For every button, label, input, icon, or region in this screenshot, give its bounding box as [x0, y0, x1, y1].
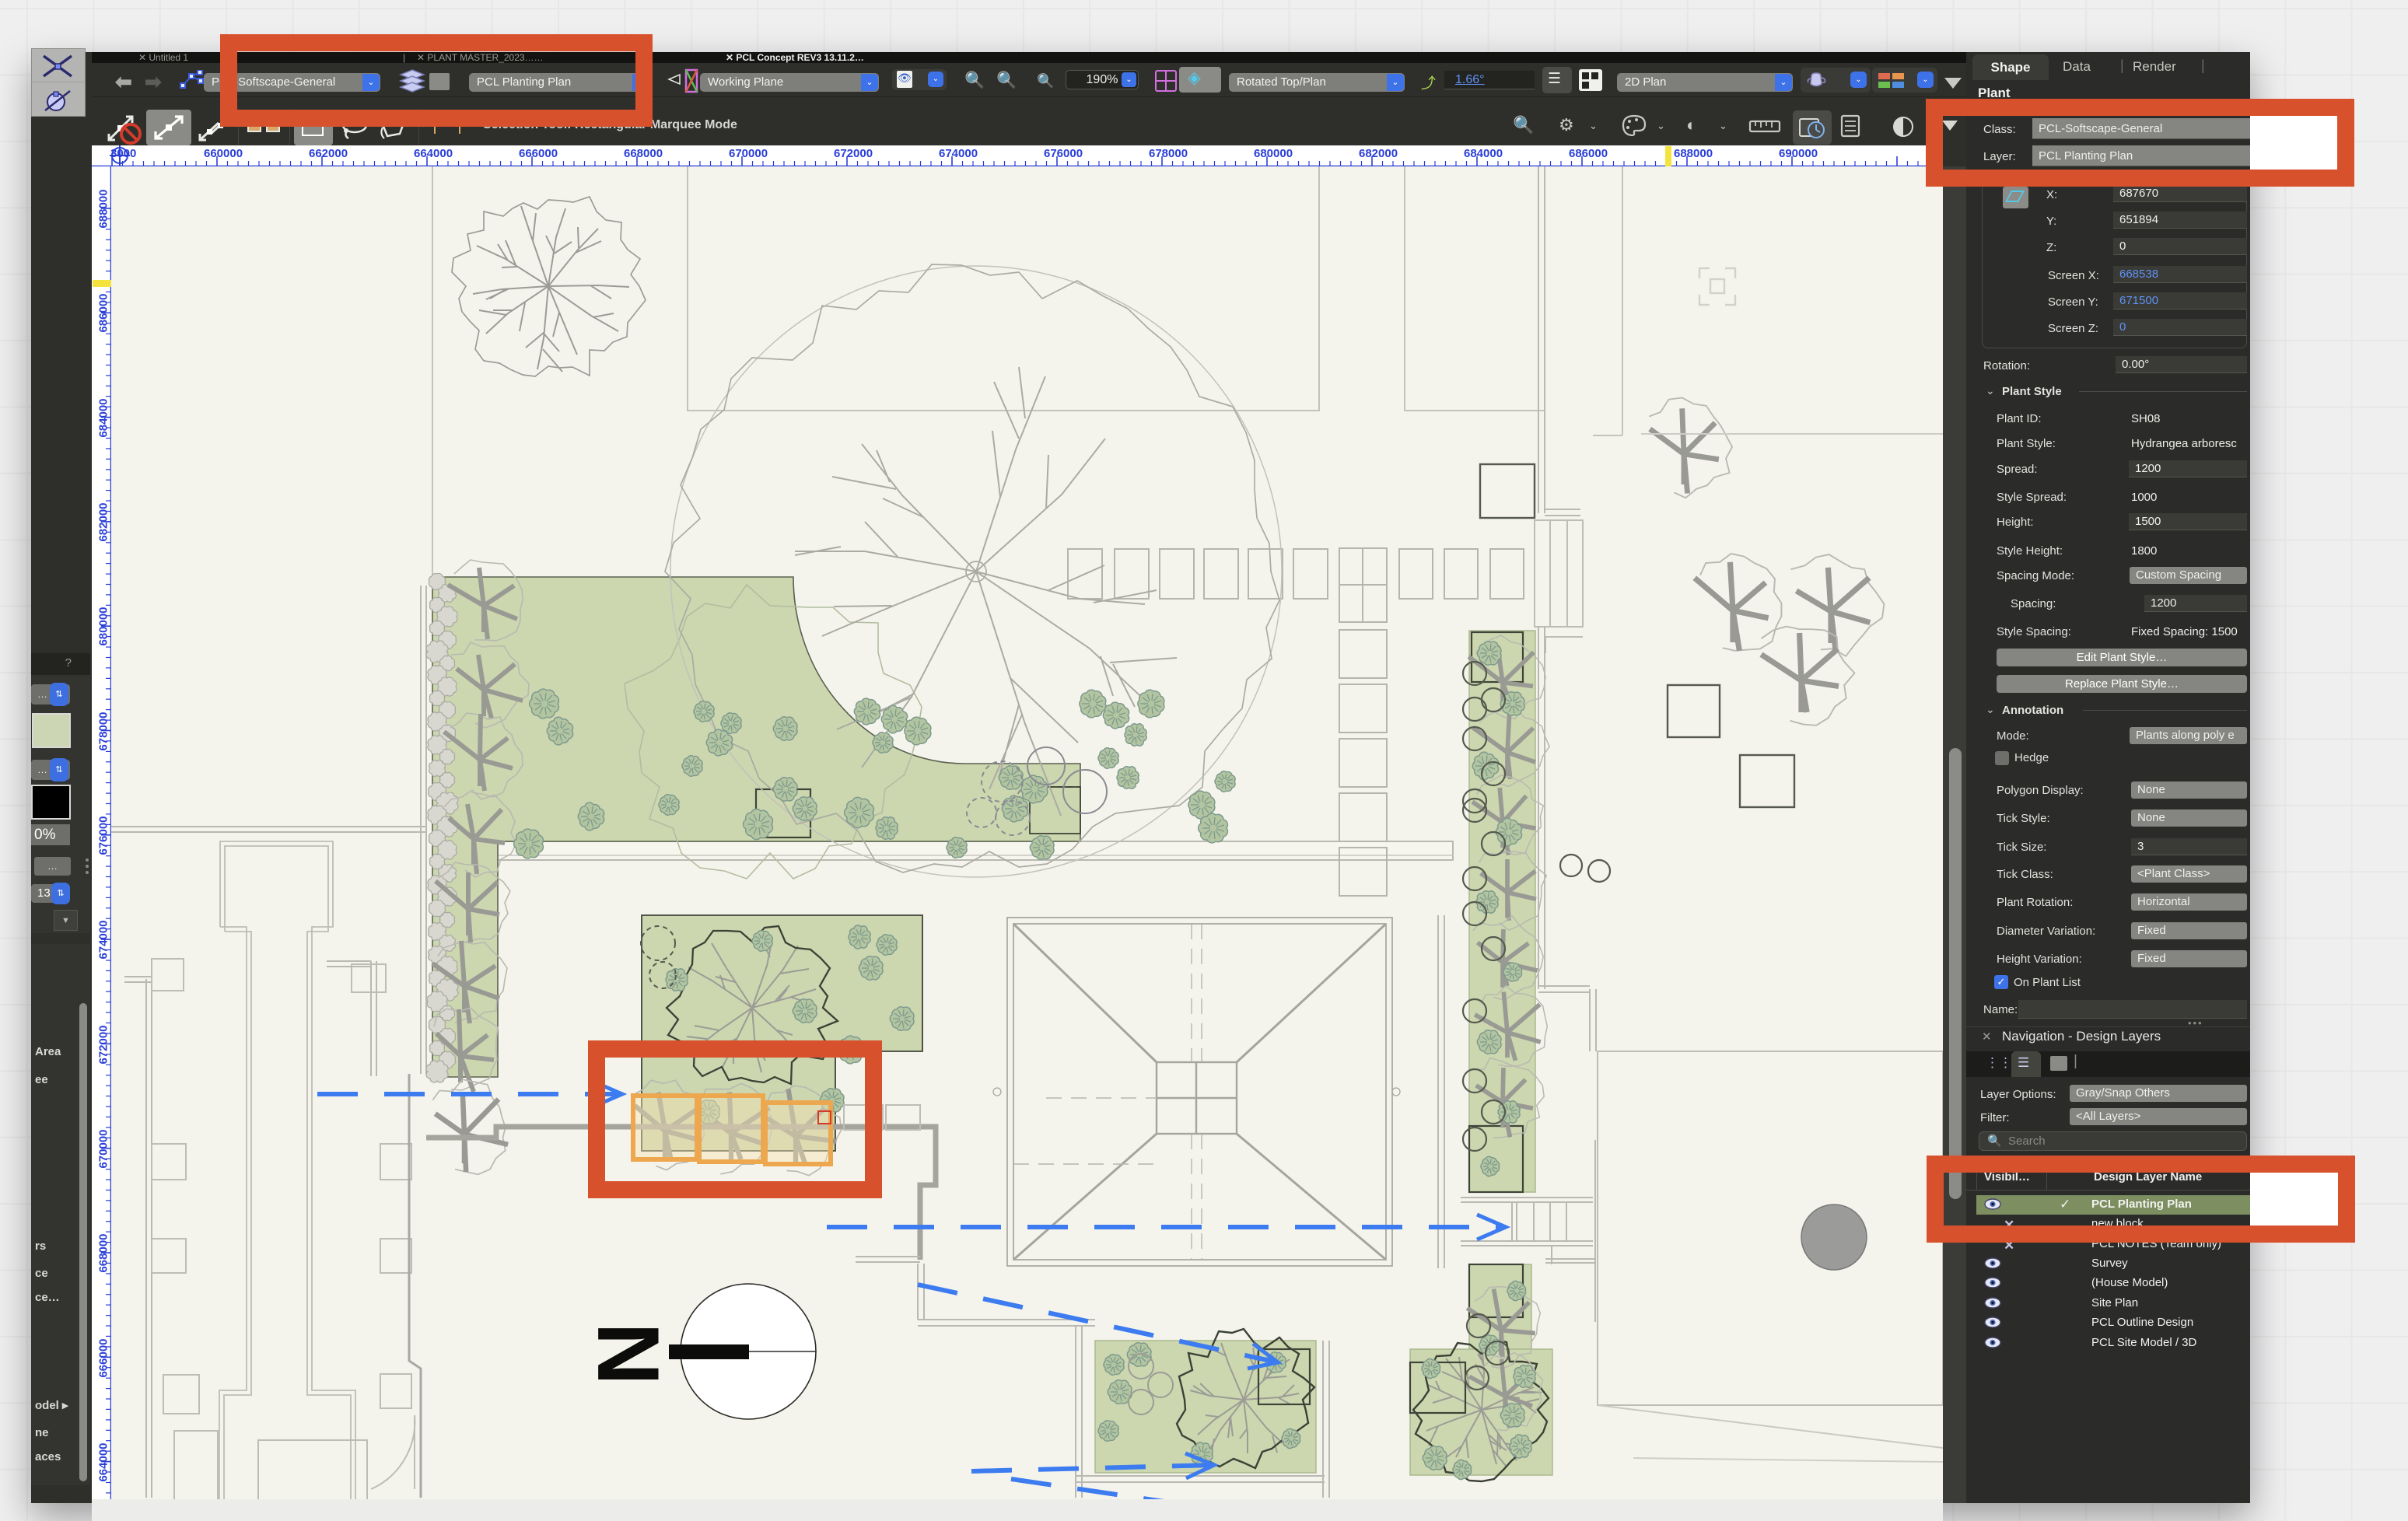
svg-text:N: N: [580, 1323, 677, 1386]
